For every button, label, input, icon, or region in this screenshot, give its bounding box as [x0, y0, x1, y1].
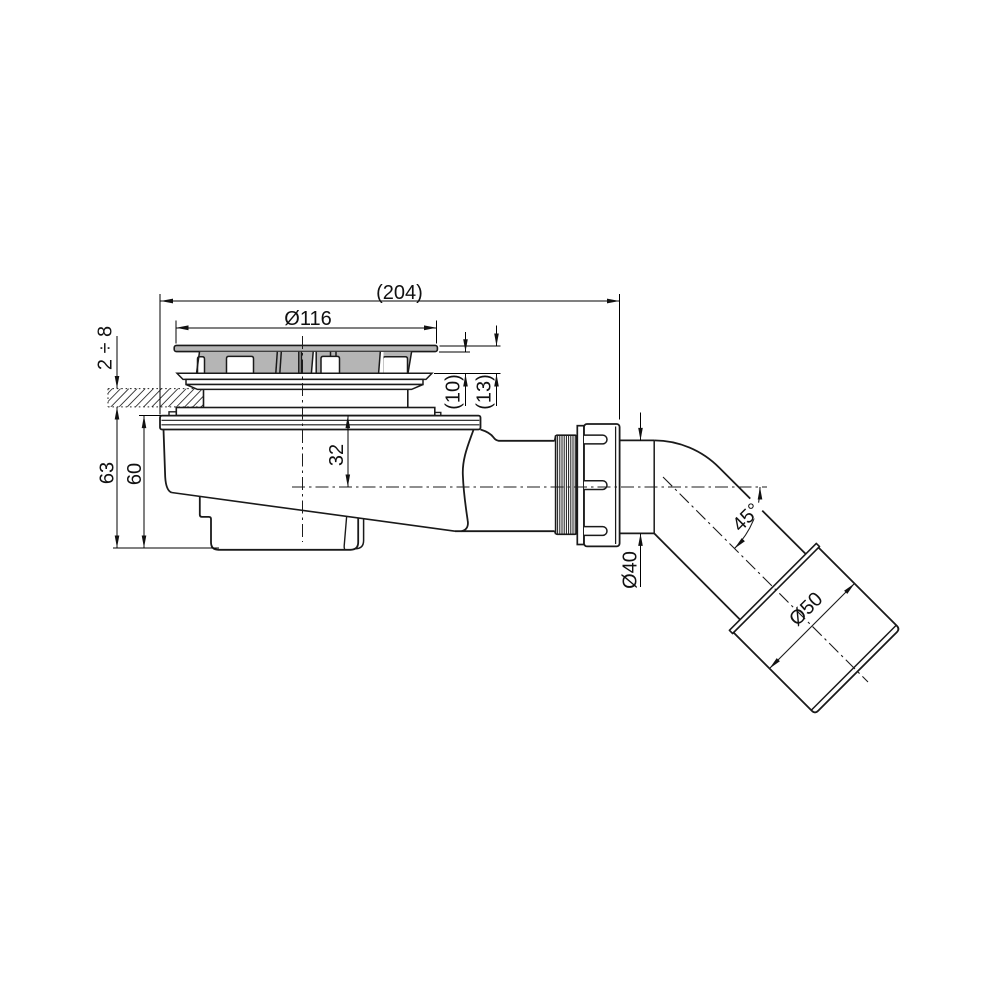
svg-text:(13): (13)	[474, 374, 496, 410]
svg-text:32: 32	[326, 444, 348, 466]
svg-text:2 ÷ 8: 2 ÷ 8	[95, 326, 117, 370]
svg-text:60: 60	[124, 463, 146, 485]
svg-text:Ø40: Ø40	[620, 551, 642, 589]
svg-text:Ø116: Ø116	[284, 308, 331, 330]
svg-text:63: 63	[97, 462, 119, 484]
svg-text:(204): (204)	[376, 282, 423, 304]
svg-text:(10): (10)	[443, 374, 465, 410]
